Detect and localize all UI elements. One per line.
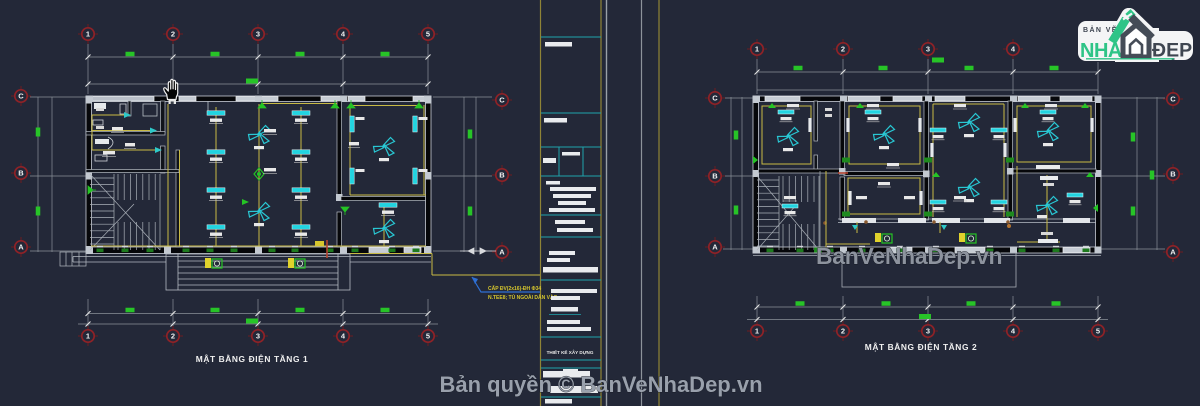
svg-text:2: 2 bbox=[171, 30, 175, 39]
svg-text:MẬT BẰNG ĐIỆN TẦNG 2: MẬT BẰNG ĐIỆN TẦNG 2 bbox=[865, 341, 978, 352]
svg-text:A: A bbox=[18, 243, 24, 252]
svg-text:THIẾT KẾ XÂY DỰNG: THIẾT KẾ XÂY DỰNG bbox=[547, 349, 594, 355]
svg-text:MẬT BẰNG ĐIỆN TẦNG 1: MẬT BẰNG ĐIỆN TẦNG 1 bbox=[196, 353, 309, 364]
svg-text:3: 3 bbox=[926, 45, 930, 54]
svg-text:B: B bbox=[499, 171, 505, 180]
svg-text:B: B bbox=[712, 172, 718, 181]
svg-text:C: C bbox=[18, 92, 24, 101]
svg-text:3: 3 bbox=[256, 30, 260, 39]
svg-text:5: 5 bbox=[426, 30, 430, 39]
svg-text:BanVeNhaDep.vn: BanVeNhaDep.vn bbox=[816, 243, 1002, 269]
svg-text:3: 3 bbox=[256, 332, 260, 341]
svg-text:1: 1 bbox=[755, 327, 759, 336]
svg-text:1: 1 bbox=[86, 332, 90, 341]
svg-text:A: A bbox=[712, 243, 718, 252]
svg-text:A: A bbox=[499, 248, 505, 257]
svg-text:2: 2 bbox=[841, 45, 845, 54]
svg-text:BẢN VẼ: BẢN VẼ bbox=[1083, 25, 1118, 34]
svg-text:CẤP ĐV(2x16)-ĐH Φ34: CẤP ĐV(2x16)-ĐH Φ34 bbox=[488, 285, 541, 292]
svg-text:Bản quyền © BanVeNhaDep.vn: Bản quyền © BanVeNhaDep.vn bbox=[439, 372, 762, 397]
svg-text:2: 2 bbox=[841, 327, 845, 336]
svg-text:C: C bbox=[712, 94, 718, 103]
svg-text:B: B bbox=[1170, 170, 1176, 179]
svg-text:1: 1 bbox=[755, 45, 759, 54]
svg-text:3: 3 bbox=[926, 327, 930, 336]
svg-text:2: 2 bbox=[171, 332, 175, 341]
svg-text:A: A bbox=[1170, 248, 1176, 257]
svg-text:B: B bbox=[18, 169, 24, 178]
svg-text:C: C bbox=[1170, 95, 1176, 104]
svg-text:5: 5 bbox=[1096, 327, 1100, 336]
svg-text:N.TEE8; TỦ NGOÀI DẪN VÀO: N.TEE8; TỦ NGOÀI DẪN VÀO bbox=[488, 294, 558, 301]
svg-text:5: 5 bbox=[426, 332, 430, 341]
svg-text:1: 1 bbox=[86, 30, 90, 39]
svg-text:C: C bbox=[499, 96, 505, 105]
